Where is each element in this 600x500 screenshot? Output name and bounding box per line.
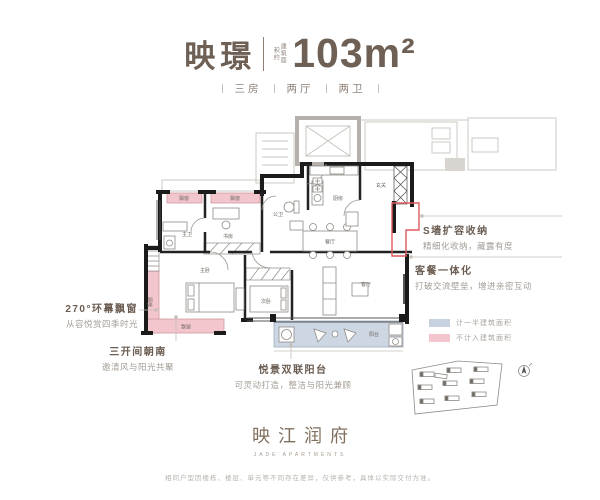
room-label-study: 书房: [223, 233, 233, 240]
brand-name: 映江润府: [0, 422, 600, 448]
annotation-title: 270°环幕飘窗: [28, 300, 138, 315]
spec-divider: [274, 84, 275, 93]
room-label-bay: 飘窗: [181, 324, 191, 331]
legend-swatch-pink: [429, 334, 450, 342]
room-label-living: 客厅: [361, 281, 371, 288]
annotation-desc: 打破交流壁垒，增进亲密互动: [415, 280, 575, 292]
annotation-desc: 可灵动打造，整洁与阳光兼顾: [213, 379, 373, 391]
site-buildings: [418, 367, 488, 404]
legend: 计一半建筑面积 不计入建筑面积: [429, 318, 512, 348]
annotation-title: S墙扩容收纳: [423, 222, 573, 237]
compass-icon: [519, 363, 533, 377]
legend-row-half-area: 计一半建筑面积: [429, 318, 512, 328]
room-labels: 飘窗 飘窗 飘窗 飘窗 主卫 书房 公卫 厨房 玄关 餐厅 客厅 主卧 次卧 阳…: [147, 182, 386, 338]
spec-divider: [378, 84, 379, 93]
spec-baths: 两卫: [339, 81, 366, 96]
annotation-desc: 邀清风与阳光共聚: [93, 361, 183, 373]
annotation-dining-living: 客餐一体化 打破交流壁垒，增进亲密互动: [415, 262, 575, 292]
legend-label: 不计入建筑面积: [456, 333, 512, 343]
wall-post: [399, 314, 405, 322]
room-label-foyer: 玄关: [376, 182, 386, 189]
room-label-bay: 飘窗: [147, 297, 154, 307]
plan-name: 映璟: [184, 31, 256, 76]
area-value: 103m²: [292, 30, 416, 77]
specs-row: 三房 两厅 两卫: [0, 81, 600, 96]
annotation-s-wall: S墙扩容收纳 精细化收纳，藏露有度: [423, 222, 573, 252]
room-label-bedroom2: 次卧: [261, 298, 271, 305]
legend-label: 计一半建筑面积: [456, 318, 512, 328]
s-wall-highlight: [392, 203, 419, 256]
annotation-bay-window: 270°环幕飘窗 从容悦赏四季时光: [28, 300, 138, 330]
annotation-balcony: 悦景双联阳台 可灵动打造，整洁与阳光兼顾: [213, 361, 373, 391]
brand-subtitle: JADE APARTMENTS: [0, 452, 600, 458]
annotation-title: 三开间朝南: [93, 343, 183, 358]
spec-divider: [222, 84, 223, 93]
room-label-dining: 餐厅: [325, 239, 335, 246]
legend-swatch-blue: [429, 319, 450, 327]
room-label-bay: 飘窗: [179, 195, 189, 202]
spec-divider: [326, 84, 327, 93]
annotation-title: 悦景双联阳台: [213, 361, 373, 376]
room-label-guest-bath: 公卫: [273, 212, 283, 218]
room-label-master: 主卧: [200, 267, 210, 274]
area-note: 建筑面积约: [271, 41, 285, 66]
disclaimer-text: 相同户型因楼栋、楼层、单元等不同存在差异，仅供参考，具体以实际交付为准。: [0, 472, 600, 482]
annotation-south-rooms: 三开间朝南 邀清风与阳光共聚: [93, 343, 183, 373]
title-divider: [263, 37, 264, 71]
wall-post: [270, 314, 276, 322]
room-label-kitchen: 厨房: [333, 195, 343, 202]
site-plan: [412, 361, 502, 414]
spec-halls: 两厅: [287, 81, 314, 96]
room-label-master-bath: 主卫: [182, 231, 192, 238]
legend-row-excluded-area: 不计入建筑面积: [429, 333, 512, 343]
spec-rooms: 三房: [235, 81, 262, 96]
annotation-title: 客餐一体化: [415, 262, 575, 277]
annotation-desc: 精细化收纳，藏露有度: [423, 240, 573, 252]
annotation-desc: 从容悦赏四季时光: [28, 318, 138, 330]
room-label-bay: 飘窗: [230, 195, 240, 202]
header: 映璟 建筑面积约 103m² 三房 两厅 两卫: [0, 30, 600, 96]
room-label-balcony: 阳台: [369, 331, 379, 338]
brand-logo: 映江润府 JADE APARTMENTS: [0, 422, 600, 458]
